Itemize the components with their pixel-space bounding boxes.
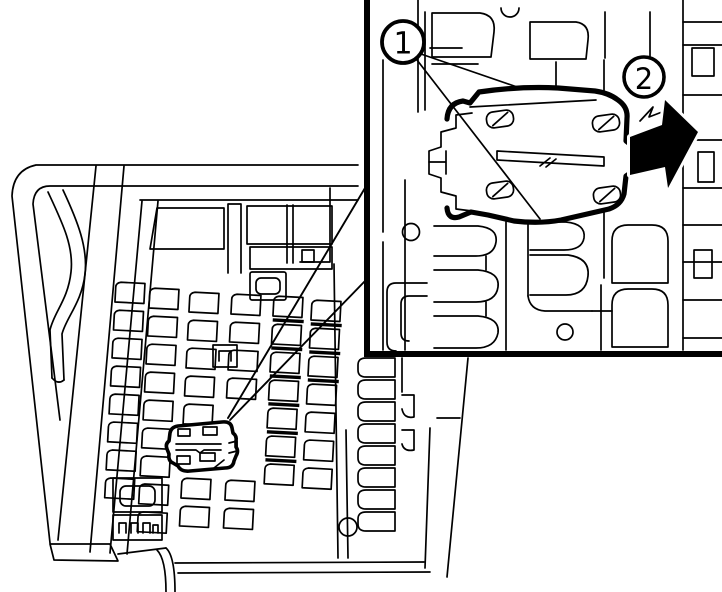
service-manual-illustration: 1 2 [0,0,722,592]
relay-location-highlight [166,422,237,471]
inset-view-magnified: 1 2 [364,0,722,357]
figure-canvas: 1 2 [0,0,722,592]
callout-2-label: 2 [635,62,653,96]
inset-bottom-border [364,351,722,357]
relay-body-fill [448,88,635,223]
callout-2: 2 [624,57,664,97]
inset-left-border [364,0,370,357]
callout-1-label: 1 [393,27,412,62]
relay-part [429,88,635,223]
callout-1: 1 [382,21,424,63]
